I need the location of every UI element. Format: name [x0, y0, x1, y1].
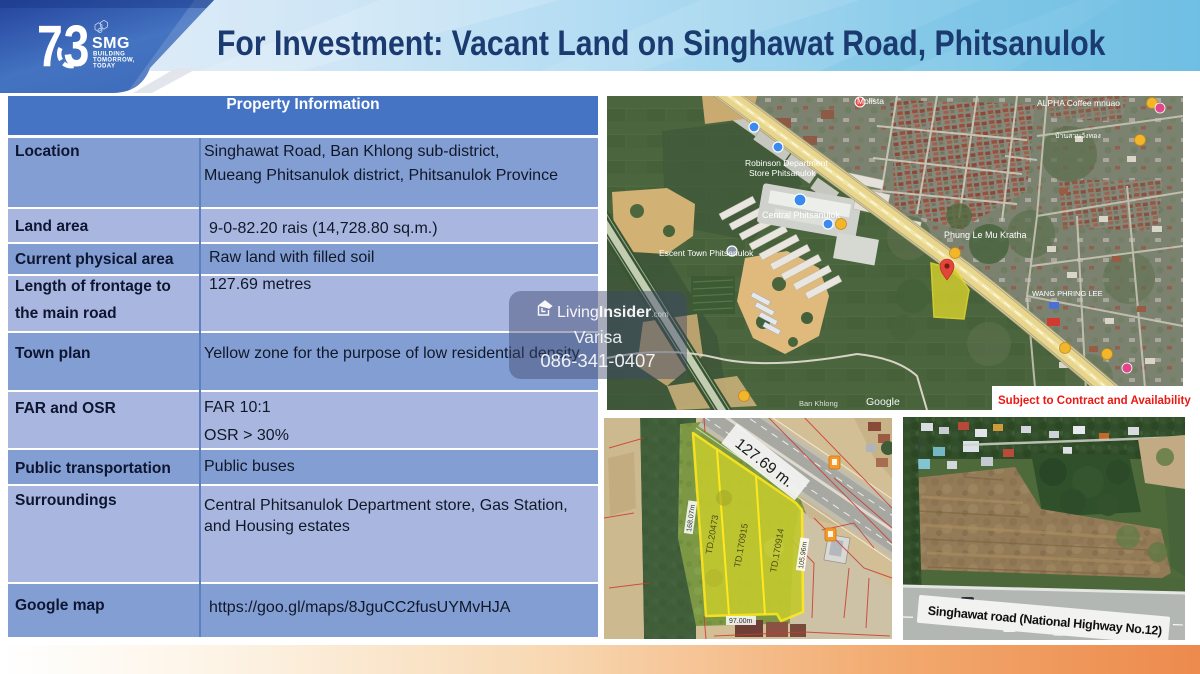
- svg-text:73: 73: [37, 14, 90, 79]
- svg-text:บ้านสวนวังทอง: บ้านสวนวังทอง: [1055, 132, 1101, 140]
- svg-text:Phung Le Mu Kratha: Phung Le Mu Kratha: [944, 230, 1027, 240]
- svg-text:ALPHA Coffee mnuao: ALPHA Coffee mnuao: [1037, 98, 1120, 108]
- svg-text:Central Phitsanulok: Central Phitsanulok: [762, 210, 841, 220]
- svg-text:SMG: SMG: [92, 35, 130, 52]
- svg-text:TODAY: TODAY: [93, 64, 115, 70]
- svg-text:Escent Town Phitsanulok: Escent Town Phitsanulok: [659, 248, 754, 258]
- svg-text:97.00m: 97.00m: [729, 618, 753, 625]
- svg-text:Store Phitsanulok: Store Phitsanulok: [749, 168, 816, 178]
- svg-text:Google: Google: [866, 396, 900, 408]
- svg-text:WANG PHRING LEE: WANG PHRING LEE: [1032, 289, 1103, 298]
- svg-text:Molista: Molista: [857, 96, 884, 106]
- svg-text:Ban Khlong: Ban Khlong: [799, 399, 838, 408]
- svg-text:Robinson Department: Robinson Department: [745, 158, 828, 168]
